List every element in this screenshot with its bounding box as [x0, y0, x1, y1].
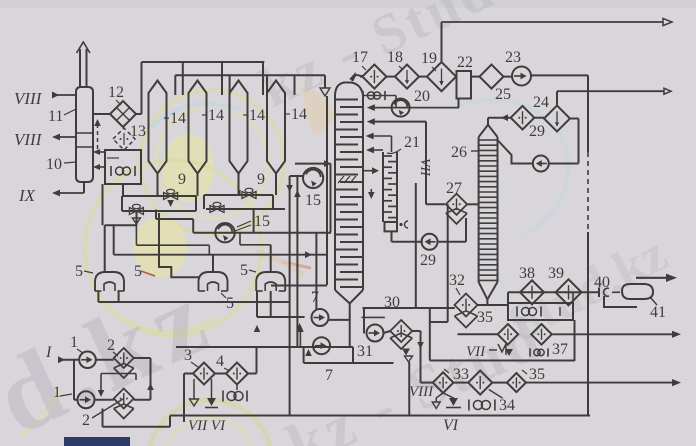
svg-text:34: 34	[499, 397, 515, 414]
svg-text:VIII: VIII	[14, 130, 43, 149]
svg-text:14: 14	[291, 106, 307, 123]
svg-text:35: 35	[477, 309, 493, 326]
svg-text:19: 19	[421, 50, 437, 67]
svg-text:9: 9	[257, 171, 265, 188]
svg-text:18: 18	[387, 49, 403, 66]
svg-text:31: 31	[357, 343, 373, 360]
svg-text:4: 4	[216, 353, 224, 370]
svg-text:14: 14	[208, 107, 224, 124]
svg-text:9: 9	[178, 171, 186, 188]
svg-text:VII VI: VII VI	[188, 418, 226, 434]
svg-text:38: 38	[519, 265, 535, 282]
svg-text:22: 22	[457, 54, 473, 71]
svg-text:15: 15	[254, 213, 270, 230]
svg-text:10: 10	[46, 156, 62, 173]
svg-text:VII: VII	[466, 344, 486, 360]
svg-text:25: 25	[495, 86, 511, 103]
svg-text:37: 37	[552, 341, 568, 358]
svg-text:27: 27	[446, 180, 462, 197]
svg-text:24: 24	[533, 94, 549, 111]
svg-text:35: 35	[529, 366, 545, 383]
svg-text:39: 39	[548, 265, 564, 282]
svg-text:1: 1	[53, 384, 61, 401]
svg-text:7: 7	[325, 367, 333, 384]
svg-text:5: 5	[134, 263, 142, 280]
svg-text:VIII: VIII	[14, 89, 43, 108]
svg-text:33: 33	[453, 366, 469, 383]
svg-text:20: 20	[414, 88, 430, 105]
svg-text:VIII: VIII	[409, 384, 434, 400]
svg-text:23: 23	[505, 49, 521, 66]
svg-text:11: 11	[48, 108, 63, 125]
svg-text:5: 5	[226, 295, 234, 312]
svg-text:32: 32	[449, 272, 465, 289]
svg-text:VII: VII	[417, 158, 432, 177]
svg-text:14: 14	[249, 107, 265, 124]
svg-text:IX: IX	[18, 186, 36, 205]
svg-text:29: 29	[529, 123, 545, 140]
svg-text:21: 21	[404, 134, 420, 151]
svg-text:7: 7	[311, 289, 319, 306]
svg-text:5: 5	[75, 263, 83, 280]
svg-text:41: 41	[650, 304, 666, 321]
svg-text:14: 14	[170, 110, 186, 127]
svg-text:1: 1	[70, 334, 78, 351]
svg-text:17: 17	[352, 49, 368, 66]
svg-text:29: 29	[420, 252, 436, 269]
svg-text:2: 2	[82, 412, 90, 429]
svg-text:2: 2	[107, 337, 115, 354]
svg-text:12: 12	[108, 84, 124, 101]
svg-text:5: 5	[240, 262, 248, 279]
svg-text:15: 15	[305, 192, 321, 209]
svg-text:I: I	[45, 344, 52, 361]
svg-text:3: 3	[184, 347, 192, 364]
svg-text:26: 26	[451, 144, 467, 161]
svg-text:VI: VI	[443, 417, 459, 434]
